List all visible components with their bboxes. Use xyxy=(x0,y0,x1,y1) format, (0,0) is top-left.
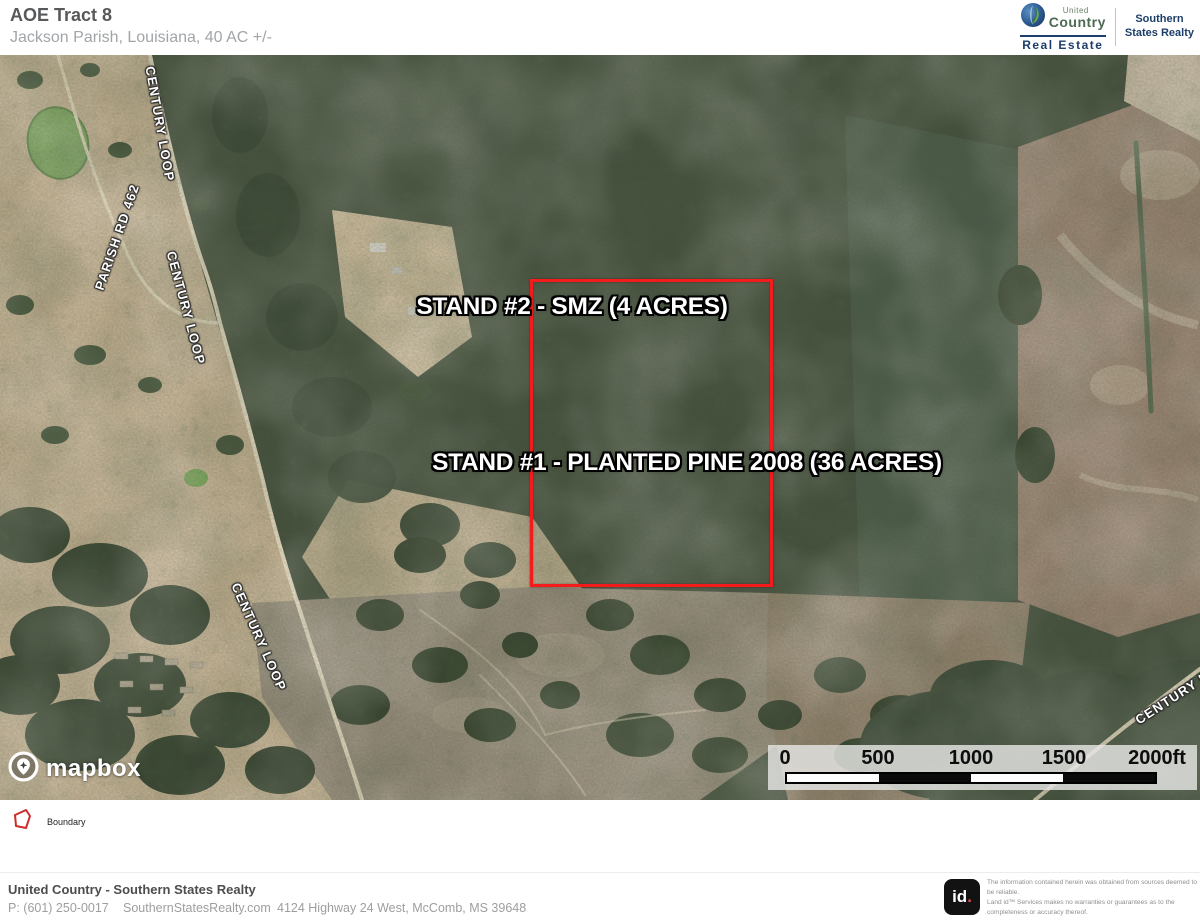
legend: Boundary xyxy=(0,800,1200,845)
page-subtitle: Jackson Parish, Louisiana, 40 AC +/- xyxy=(10,29,272,47)
brand-area: United Country Real Estate Southern Stat… xyxy=(1020,5,1194,49)
scale-tick-0: 0 xyxy=(779,747,790,770)
disclaimer-line-1: The information contained herein was obt… xyxy=(987,878,1199,898)
footer-disclaimer: The information contained herein was obt… xyxy=(987,878,1199,918)
scale-tick-500: 500 xyxy=(861,747,894,770)
globe-leaf-icon xyxy=(1020,2,1046,33)
uc-country-text: Country xyxy=(1049,15,1106,29)
header: AOE Tract 8 Jackson Parish, Louisiana, 4… xyxy=(0,0,1200,55)
scale-bar-segments xyxy=(785,772,1157,784)
scale-tick-1500: 1500 xyxy=(1042,747,1087,770)
footer-website-link[interactable]: SouthernStatesRealty.com xyxy=(123,901,271,915)
boundary-swatch-icon xyxy=(12,808,33,836)
disclaimer-line-2: Land id™ Services makes no warranties or… xyxy=(987,898,1199,918)
brand-divider xyxy=(1115,8,1116,46)
land-id-logo: id. xyxy=(944,879,980,915)
footer-phone: P: (601) 250-0017 xyxy=(8,901,109,915)
property-boundary xyxy=(530,279,773,587)
scale-tick-2000: 2000ft xyxy=(1128,747,1186,770)
mapbox-attribution[interactable]: mapbox xyxy=(8,751,141,787)
map-canvas[interactable]: CENTURY LOOP PARISH RD 462 CENTURY LOOP … xyxy=(0,55,1200,800)
uc-real-estate-text: Real Estate xyxy=(1020,35,1106,52)
partner-line1: Southern xyxy=(1125,13,1194,27)
stand-1-label: STAND #1 - PLANTED PINE 2008 (36 ACRES) xyxy=(432,449,942,477)
partner-name: Southern States Realty xyxy=(1125,13,1194,41)
footer-address: 4124 Highway 24 West, McComb, MS 39648 xyxy=(277,901,526,915)
mapbox-wordmark: mapbox xyxy=(46,755,141,783)
land-id-logo-dot: . xyxy=(967,887,972,907)
footer: United Country - Southern States Realty … xyxy=(0,872,1200,921)
scale-bar: 0 500 1000 1500 2000ft xyxy=(768,745,1197,790)
scale-tick-1000: 1000 xyxy=(949,747,994,770)
legend-item-boundary: Boundary xyxy=(12,808,86,836)
partner-line2: States Realty xyxy=(1125,27,1194,41)
page-title: AOE Tract 8 xyxy=(10,5,112,26)
page: AOE Tract 8 Jackson Parish, Louisiana, 4… xyxy=(0,0,1200,921)
mapbox-pin-icon xyxy=(8,751,39,787)
legend-label: Boundary xyxy=(47,817,86,827)
footer-company-name: United Country - Southern States Realty xyxy=(8,882,256,897)
land-id-logo-text: id xyxy=(952,887,967,907)
united-country-logo: United Country Real Estate xyxy=(1020,2,1106,52)
stand-2-label: STAND #2 - SMZ (4 ACRES) xyxy=(416,293,727,321)
